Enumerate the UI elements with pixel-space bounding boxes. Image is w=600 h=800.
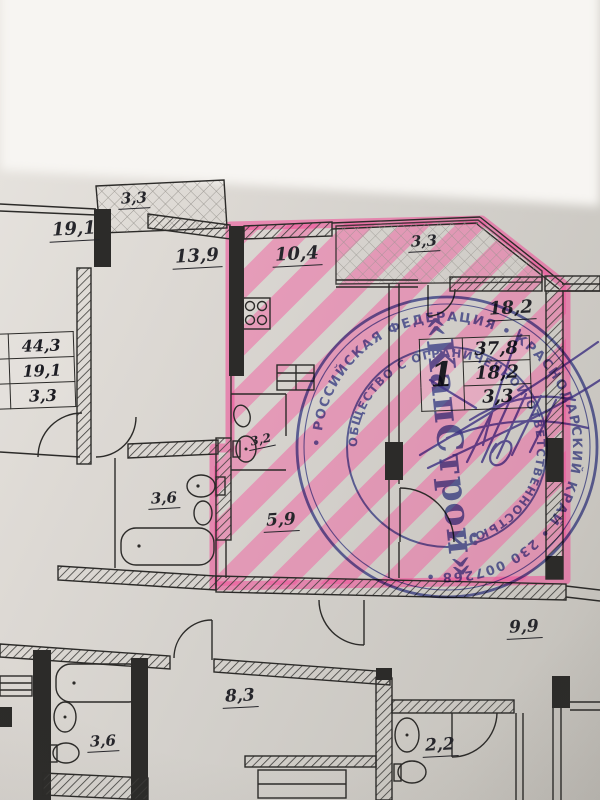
room-area-label-9-9: 9,9 (506, 618, 543, 640)
radiator-icon (0, 676, 32, 696)
room-area-label-18-2: 18,2 (486, 298, 537, 322)
sink-icon (54, 702, 76, 732)
room-area-label-3-6: 3,6 (147, 490, 180, 510)
toilet-icon (394, 761, 426, 783)
room-area-label-balcony-top-left: 3,3 (117, 190, 150, 210)
room-area-label-13-9: 13,9 (172, 246, 223, 270)
table-cell: 3,3 (10, 382, 76, 409)
balcony-top-fence (336, 220, 542, 284)
floor-plan-photo: 3,3 19,1 13,9 10,4 3,3 18,2 3,2 3,6 5,9 … (0, 0, 600, 800)
sink-icon (395, 718, 419, 752)
bathtub-icon (56, 664, 144, 702)
living-area-cell: 18,2 (463, 360, 531, 386)
entry-door (319, 600, 364, 645)
room-area-label-5-9: 5,9 (263, 511, 300, 533)
table-cell: 44,3 (8, 332, 74, 359)
corridor-door (174, 620, 212, 660)
total-area-cell: 37,8 (462, 336, 530, 362)
room-area-label-3-6-bottom: 3,6 (86, 733, 119, 753)
apartment-area-table: 1 37,8 18,2 3,3 (419, 335, 532, 412)
toilet-icon (50, 743, 79, 763)
room-area-label-2-2: 2,2 (422, 736, 459, 758)
room-area-label-19-1: 19,1 (49, 219, 100, 243)
photo-glare (0, 0, 600, 206)
room-area-label-balcony-top: 3,3 (407, 233, 440, 253)
room-area-label-8-3: 8,3 (222, 687, 259, 709)
rooms-count-cell: 1 (419, 338, 464, 411)
balcony-area-cell: 3,3 (464, 384, 532, 410)
bathtub-icon (121, 528, 214, 565)
room-area-label-10-4: 10,4 (272, 244, 323, 268)
bath-door (452, 713, 497, 757)
left-flat-area-table: 44,3 19,1 3,3 (0, 331, 76, 411)
table-cell: 19,1 (9, 357, 75, 384)
sink-icon (194, 501, 212, 525)
